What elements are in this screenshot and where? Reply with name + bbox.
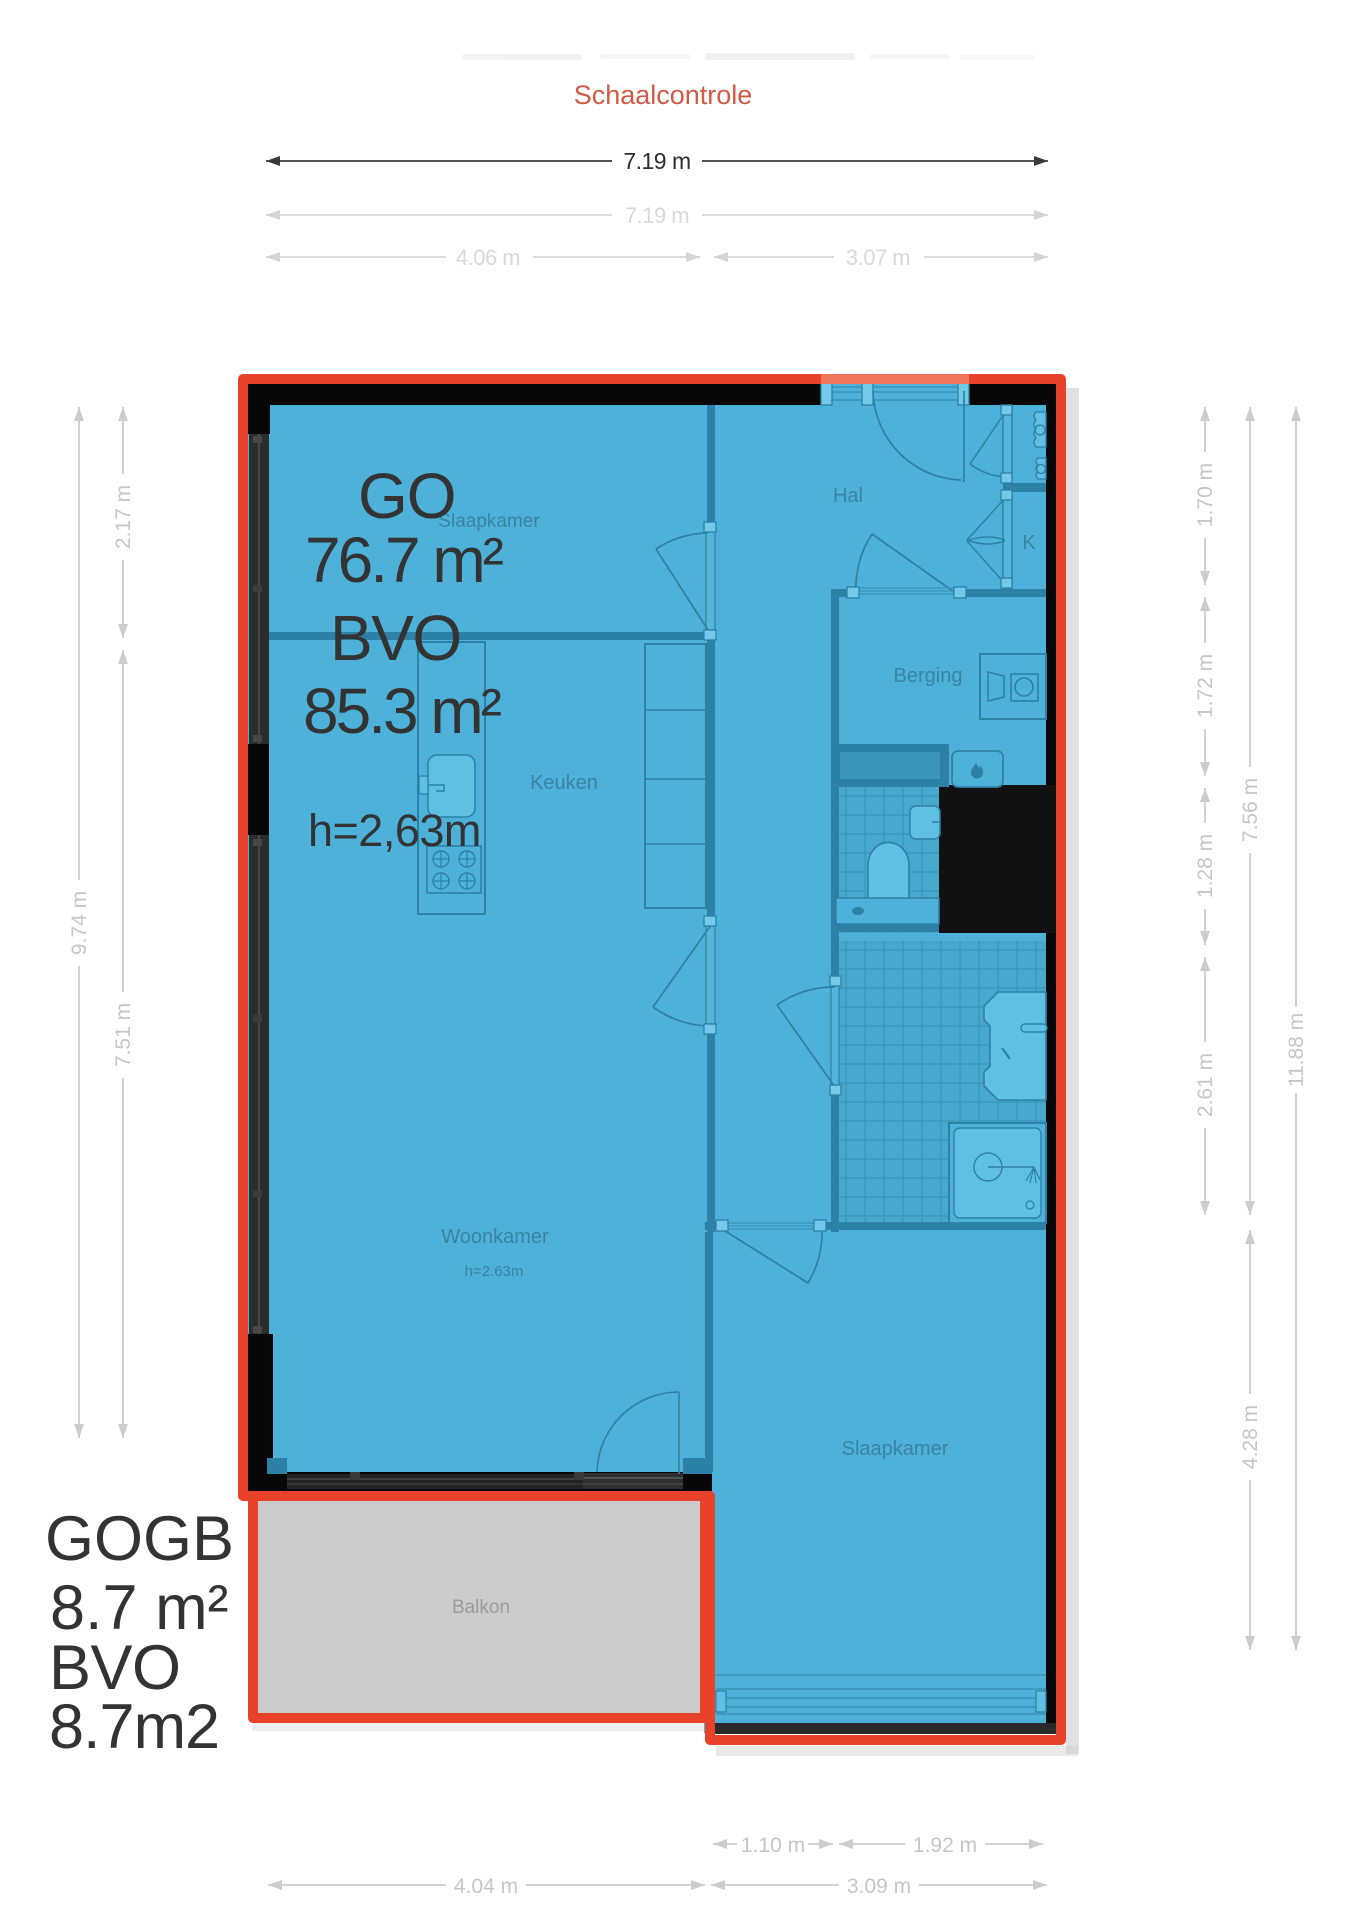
svg-text:Berging: Berging xyxy=(894,665,963,687)
svg-text:h=2.63m: h=2.63m xyxy=(465,1263,524,1280)
svg-text:2.61 m: 2.61 m xyxy=(1194,1053,1217,1117)
svg-text:4.28 m: 4.28 m xyxy=(1239,1405,1262,1469)
svg-text:76.7 m²: 76.7 m² xyxy=(305,524,504,596)
svg-text:GOGB: GOGB xyxy=(45,1504,234,1574)
svg-text:1.72 m: 1.72 m xyxy=(1194,654,1217,718)
svg-text:3.09 m: 3.09 m xyxy=(847,1875,911,1898)
svg-text:3.07 m: 3.07 m xyxy=(846,245,910,270)
svg-text:Slaapkamer: Slaapkamer xyxy=(842,1438,949,1460)
svg-text:h=2,63m: h=2,63m xyxy=(308,805,481,856)
svg-text:85.3 m²: 85.3 m² xyxy=(303,675,502,747)
svg-text:Schaalcontrole: Schaalcontrole xyxy=(574,80,753,110)
svg-text:2.17 m: 2.17 m xyxy=(112,485,135,549)
svg-text:4.06 m: 4.06 m xyxy=(456,245,520,270)
svg-text:7.56 m: 7.56 m xyxy=(1239,778,1262,842)
svg-text:7.51 m: 7.51 m xyxy=(112,1003,135,1067)
svg-text:9.74 m: 9.74 m xyxy=(68,891,91,955)
svg-text:Hal: Hal xyxy=(833,485,863,507)
svg-text:7.19 m: 7.19 m xyxy=(623,148,690,174)
svg-text:1.70 m: 1.70 m xyxy=(1194,463,1217,527)
svg-text:Keuken: Keuken xyxy=(530,772,598,794)
svg-text:8.7m2: 8.7m2 xyxy=(49,1692,219,1762)
svg-text:1.10 m: 1.10 m xyxy=(741,1834,805,1857)
svg-text:1.92 m: 1.92 m xyxy=(913,1834,977,1857)
svg-text:7.19 m: 7.19 m xyxy=(625,203,689,228)
svg-text:GO: GO xyxy=(358,460,456,532)
svg-text:Balkon: Balkon xyxy=(452,1597,510,1618)
svg-text:11.88 m: 11.88 m xyxy=(1285,1013,1308,1087)
svg-text:BVO: BVO xyxy=(330,602,461,674)
svg-text:K: K xyxy=(1022,532,1036,554)
svg-text:4.04 m: 4.04 m xyxy=(454,1875,518,1898)
svg-text:1.28 m: 1.28 m xyxy=(1194,834,1217,898)
svg-text:Woonkamer: Woonkamer xyxy=(441,1226,549,1248)
